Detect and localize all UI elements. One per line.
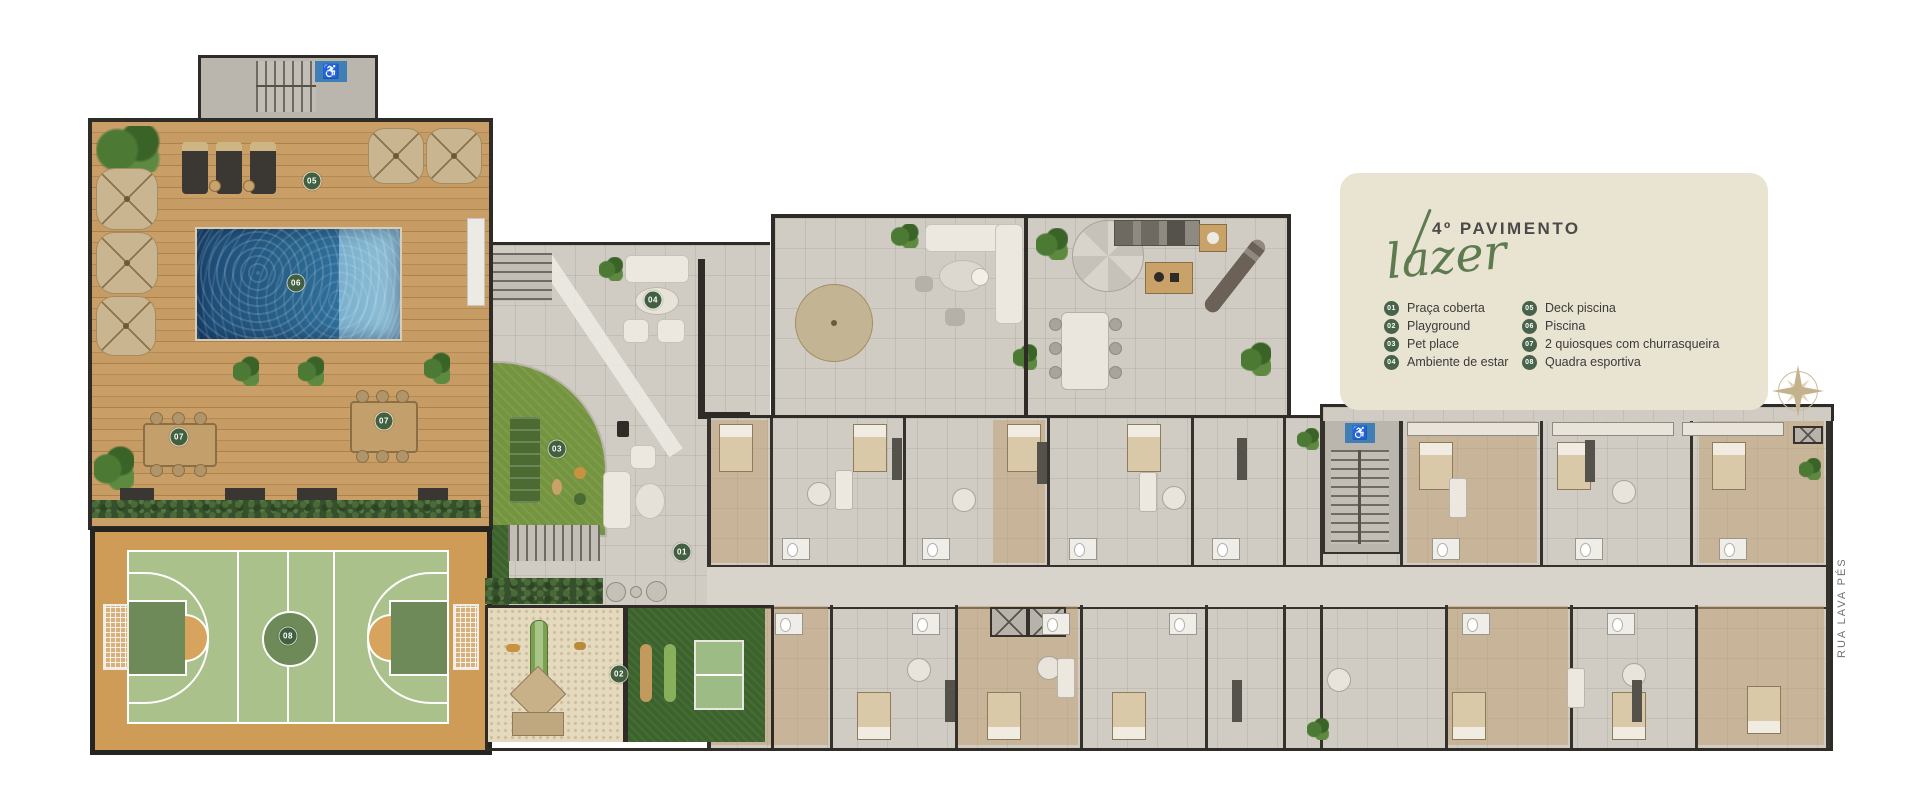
bed xyxy=(1452,692,1486,740)
bathroom-fixture xyxy=(1607,613,1635,635)
chair xyxy=(356,450,369,463)
legend-item: 072 quiosques com churrasqueira xyxy=(1522,337,1719,351)
legend-column-2: 05Deck piscina06Piscina072 quiosques com… xyxy=(1522,301,1719,369)
chair xyxy=(356,390,369,403)
bathroom-fixture xyxy=(1575,538,1603,560)
dining-table xyxy=(907,658,931,682)
unit-wall xyxy=(830,605,833,748)
plan-marker: 02 xyxy=(611,666,628,683)
pouf xyxy=(915,276,933,292)
armchair xyxy=(630,445,656,469)
dining-table xyxy=(1327,668,1351,692)
unit-wall xyxy=(1540,418,1543,565)
legend-column-1: 01Praça coberta02Playground03Pet place04… xyxy=(1384,301,1508,369)
unit-wall xyxy=(1695,605,1698,748)
goal-right xyxy=(453,604,479,670)
dog xyxy=(552,479,562,495)
legend-item-number: 01 xyxy=(1384,301,1399,316)
plan-marker: 01 xyxy=(674,544,691,561)
legend-item: 04Ambiente de estar xyxy=(1384,355,1508,369)
chair xyxy=(194,464,207,477)
compass-rose-icon xyxy=(1772,365,1824,417)
playground xyxy=(485,605,774,751)
chair xyxy=(172,464,185,477)
kitchen-counter xyxy=(892,438,902,480)
kitchen-counter xyxy=(1682,422,1784,436)
sofa xyxy=(1449,478,1467,518)
legend-item: 03Pet place xyxy=(1384,337,1508,351)
chair xyxy=(1109,342,1122,355)
bed xyxy=(1747,686,1781,734)
legend-item-number: 03 xyxy=(1384,337,1399,352)
bed xyxy=(1419,442,1453,490)
coffee-table xyxy=(1145,262,1193,294)
bathroom-fixture xyxy=(1042,613,1070,635)
legend-item: 08Quadra esportiva xyxy=(1522,355,1719,369)
legend-item-number: 02 xyxy=(1384,319,1399,334)
three-point-right xyxy=(367,572,447,704)
pet-toy xyxy=(574,493,586,505)
kitchen-counter xyxy=(1632,680,1642,722)
plant xyxy=(424,352,450,384)
accessible-icon: ♿ xyxy=(1345,423,1375,443)
legend-item-label: Piscina xyxy=(1545,319,1585,333)
legend-item: 01Praça coberta xyxy=(1384,301,1508,315)
kitchen-counter xyxy=(1037,442,1047,484)
legend-item-number: 07 xyxy=(1522,337,1537,352)
legend-item-number: 04 xyxy=(1384,355,1399,370)
corridor xyxy=(707,565,1830,609)
outdoor-kitchen-counter xyxy=(1114,220,1200,246)
bed xyxy=(719,424,753,472)
bathroom-fixture xyxy=(912,613,940,635)
roof-terraces xyxy=(771,214,1291,423)
plant xyxy=(1241,342,1271,376)
sofa xyxy=(1139,472,1157,512)
bed xyxy=(1127,424,1161,472)
pool-deck xyxy=(88,118,493,530)
unit-wall xyxy=(1205,605,1208,748)
floor-plan-page: ♿ xyxy=(0,0,1920,800)
plan-marker: 08 xyxy=(280,628,297,645)
plant xyxy=(599,257,623,281)
legend-item-label: Praça coberta xyxy=(1407,301,1485,315)
sofa xyxy=(603,471,631,529)
legend-item: 05Deck piscina xyxy=(1522,301,1719,315)
chair xyxy=(396,390,409,403)
parasol xyxy=(96,232,158,294)
apartment-block: ♿ xyxy=(707,415,1833,751)
bathroom-fixture xyxy=(782,538,810,560)
legend-item: 02Playground xyxy=(1384,319,1508,333)
planters xyxy=(606,580,670,602)
corridor-wall xyxy=(698,259,705,419)
bed xyxy=(987,692,1021,740)
bathroom-fixture xyxy=(1169,613,1197,635)
parasol-table xyxy=(795,284,873,362)
terrace-divider xyxy=(1024,218,1028,419)
chair xyxy=(396,450,409,463)
bathroom-fixture xyxy=(1462,613,1490,635)
sun-lounger xyxy=(182,142,208,194)
chair xyxy=(1049,366,1062,379)
legend-item-label: Pet place xyxy=(1407,337,1459,351)
legend-item-number: 05 xyxy=(1522,301,1537,316)
kitchen-counter xyxy=(1237,438,1247,480)
legend-category-script: lazer xyxy=(1384,224,1509,290)
bed xyxy=(853,424,887,472)
toy xyxy=(574,642,586,650)
plan-marker: 07 xyxy=(171,429,188,446)
plant xyxy=(1307,718,1329,740)
unit-wall xyxy=(903,418,906,565)
chair xyxy=(194,412,207,425)
plan-marker: 07 xyxy=(376,413,393,430)
stair-rail xyxy=(1358,450,1361,544)
bathroom-fixture xyxy=(1212,538,1240,560)
parasol xyxy=(426,128,482,184)
plan-marker: 03 xyxy=(549,441,566,458)
side-table xyxy=(243,180,255,192)
plan-marker: 05 xyxy=(304,173,321,190)
legend-item-label: 2 quiosques com churrasqueira xyxy=(1545,337,1719,351)
bathroom-fixture xyxy=(1432,538,1460,560)
unit-wall xyxy=(1191,418,1194,565)
plant xyxy=(1297,428,1319,450)
side-table xyxy=(209,180,221,192)
plant xyxy=(94,446,134,490)
bed xyxy=(1112,692,1146,740)
armchair xyxy=(657,319,685,343)
east-wall xyxy=(1826,418,1830,748)
unit-wall xyxy=(1047,418,1050,565)
parasol xyxy=(96,168,158,230)
kitchen-counter xyxy=(1552,422,1674,436)
sofa xyxy=(625,255,689,283)
accessible-icon: ♿ xyxy=(315,61,347,82)
plant xyxy=(891,224,919,248)
toy xyxy=(506,644,520,652)
parasol xyxy=(96,296,156,356)
chair xyxy=(172,412,185,425)
ping-pong-table xyxy=(694,640,744,710)
pet-place xyxy=(488,361,607,537)
parasol xyxy=(368,128,424,184)
plaza-stairs-lower xyxy=(508,525,600,561)
pet-agility-ramp xyxy=(510,417,540,503)
seesaw xyxy=(640,644,652,702)
bed xyxy=(1712,442,1746,490)
bed xyxy=(1007,424,1041,472)
stair-rail xyxy=(256,85,316,87)
plant xyxy=(1036,228,1068,260)
seesaw xyxy=(664,644,676,702)
tower-stairwell: ♿ xyxy=(1323,418,1401,554)
plaza-stairs-upper xyxy=(490,253,552,301)
kitchen-counter xyxy=(1585,440,1595,482)
bathroom-fixture xyxy=(775,613,803,635)
shaft xyxy=(1793,426,1823,444)
hedge xyxy=(92,500,481,518)
unit-wall xyxy=(1283,418,1286,565)
unit-wall xyxy=(770,418,773,565)
unit-wall xyxy=(955,605,958,748)
rug xyxy=(635,483,665,519)
three-point-left xyxy=(129,572,209,704)
bathroom-fixture xyxy=(1069,538,1097,560)
kitchen-counter xyxy=(1407,422,1539,436)
elevator xyxy=(990,607,1028,637)
street-label: RUA LAVA PÉS xyxy=(1836,538,1854,658)
dining-table xyxy=(1162,486,1186,510)
unit-wall xyxy=(1690,418,1693,565)
chair xyxy=(1049,342,1062,355)
chair xyxy=(376,450,389,463)
legend-item-label: Ambiente de estar xyxy=(1407,355,1508,369)
bathroom-fixture xyxy=(922,538,950,560)
unit-wall xyxy=(1080,605,1083,748)
west-wall xyxy=(707,418,711,565)
legend-item-label: Playground xyxy=(1407,319,1470,333)
chair xyxy=(1049,318,1062,331)
unit-wall xyxy=(1445,605,1448,748)
kitchen-counter xyxy=(945,680,955,722)
bed xyxy=(857,692,891,740)
sofa xyxy=(1057,658,1075,698)
chair xyxy=(1109,318,1122,331)
pouf xyxy=(945,308,965,326)
legend-item-number: 06 xyxy=(1522,319,1537,334)
legend-item-label: Deck piscina xyxy=(1545,301,1616,315)
plant xyxy=(96,126,162,172)
roof-stair-block: ♿ xyxy=(198,55,378,124)
pet-toy xyxy=(574,467,586,479)
dining-table xyxy=(952,488,976,512)
legend-item: 06Piscina xyxy=(1522,319,1719,333)
chair xyxy=(376,390,389,403)
dining-table xyxy=(807,482,831,506)
bathroom-fixture xyxy=(1719,538,1747,560)
plan-marker: 06 xyxy=(288,275,305,292)
sectional-sofa xyxy=(995,224,1023,324)
legend-card: 4º PAVIMENTO lazer 01Praça coberta02Play… xyxy=(1340,173,1768,410)
chair xyxy=(150,464,163,477)
legend-item-number: 08 xyxy=(1522,355,1537,370)
plant xyxy=(233,356,259,386)
sand-area xyxy=(488,608,623,742)
side-table xyxy=(971,268,989,286)
playhouse-base xyxy=(512,712,564,736)
building-pillar xyxy=(467,218,485,306)
goal-left xyxy=(103,604,129,670)
plant xyxy=(298,356,324,386)
unit-wall xyxy=(1283,605,1286,748)
lawn-area xyxy=(628,608,765,742)
kitchen-counter xyxy=(1232,680,1242,722)
dining-table xyxy=(1061,312,1109,390)
dining-table xyxy=(1612,480,1636,504)
plan-marker: 04 xyxy=(645,292,662,309)
trash-bin xyxy=(617,421,629,437)
side-table xyxy=(1199,224,1227,252)
plant xyxy=(1799,458,1821,480)
chair xyxy=(1109,366,1122,379)
legend-item-label: Quadra esportiva xyxy=(1545,355,1641,369)
sofa xyxy=(835,470,853,510)
chair xyxy=(150,412,163,425)
hedge xyxy=(485,578,603,604)
armchair xyxy=(623,319,649,343)
sofa xyxy=(1567,668,1585,708)
